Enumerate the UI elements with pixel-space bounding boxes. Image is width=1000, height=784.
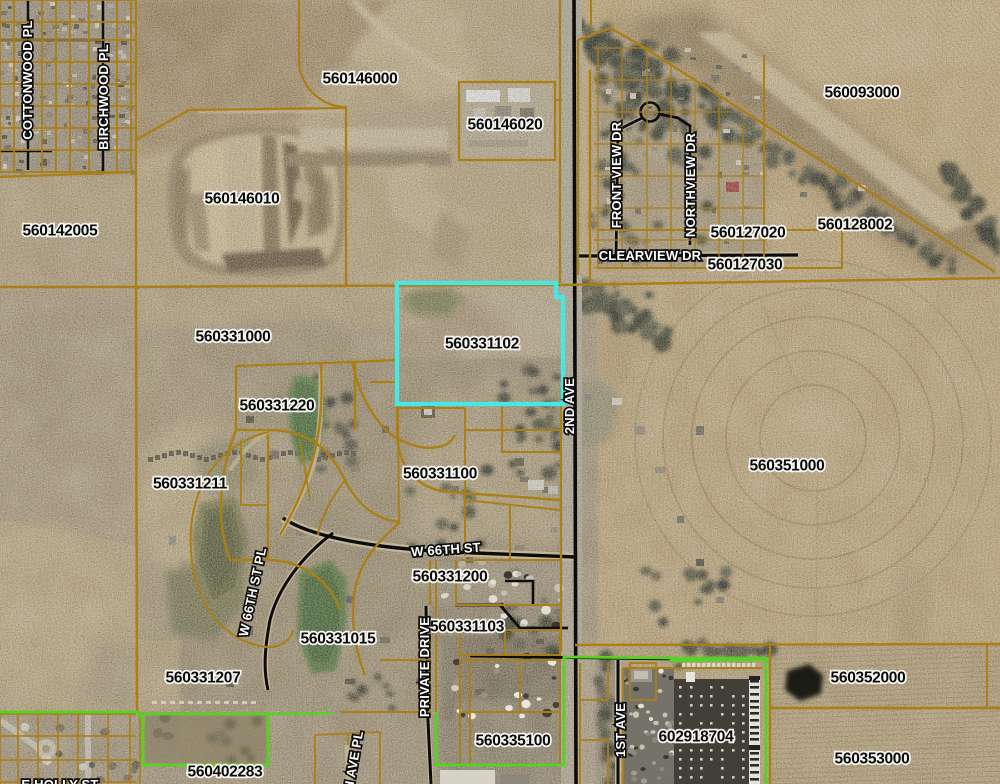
svg-text:FRONT VIEW DR: FRONT VIEW DR (609, 121, 624, 228)
svg-text:560146010: 560146010 (205, 191, 280, 208)
svg-text:E HOLLY ST: E HOLLY ST (21, 777, 98, 784)
svg-text:560331000: 560331000 (196, 329, 271, 346)
svg-text:560331103: 560331103 (430, 619, 505, 636)
svg-text:560353000: 560353000 (835, 751, 910, 768)
svg-text:NORTHVIEW DR: NORTHVIEW DR (683, 132, 698, 237)
svg-text:560331015: 560331015 (301, 631, 377, 648)
svg-text:CLEARVIEW DR: CLEARVIEW DR (599, 248, 702, 263)
svg-text:560331102: 560331102 (445, 336, 519, 353)
svg-text:560146020: 560146020 (468, 117, 543, 134)
svg-text:560351000: 560351000 (750, 458, 825, 475)
svg-text:560331220: 560331220 (240, 398, 315, 415)
svg-text:560331200: 560331200 (413, 569, 488, 586)
svg-text:560402283: 560402283 (188, 764, 264, 781)
svg-text:560142005: 560142005 (23, 223, 99, 240)
svg-text:560127030: 560127030 (708, 257, 783, 274)
svg-text:560127020: 560127020 (711, 225, 786, 242)
svg-text:560331100: 560331100 (403, 466, 477, 483)
svg-text:560146000: 560146000 (323, 71, 398, 88)
svg-text:560331207: 560331207 (166, 670, 241, 687)
svg-text:560128002: 560128002 (818, 217, 893, 234)
svg-text:BIRCHWOOD PL: BIRCHWOOD PL (96, 44, 111, 150)
svg-text:560093000: 560093000 (825, 85, 900, 102)
svg-text:PRIVATE DRIVE: PRIVATE DRIVE (417, 617, 432, 717)
svg-text:602918704: 602918704 (659, 729, 735, 746)
svg-text:560335100: 560335100 (476, 733, 551, 750)
svg-text:560352000: 560352000 (831, 670, 906, 687)
svg-text:560331211: 560331211 (153, 476, 228, 493)
svg-text:COTTONWOOD PL: COTTONWOOD PL (20, 20, 35, 139)
svg-text:2ND AVE: 2ND AVE (562, 378, 577, 434)
svg-text:1ST AVE: 1ST AVE (613, 703, 628, 757)
